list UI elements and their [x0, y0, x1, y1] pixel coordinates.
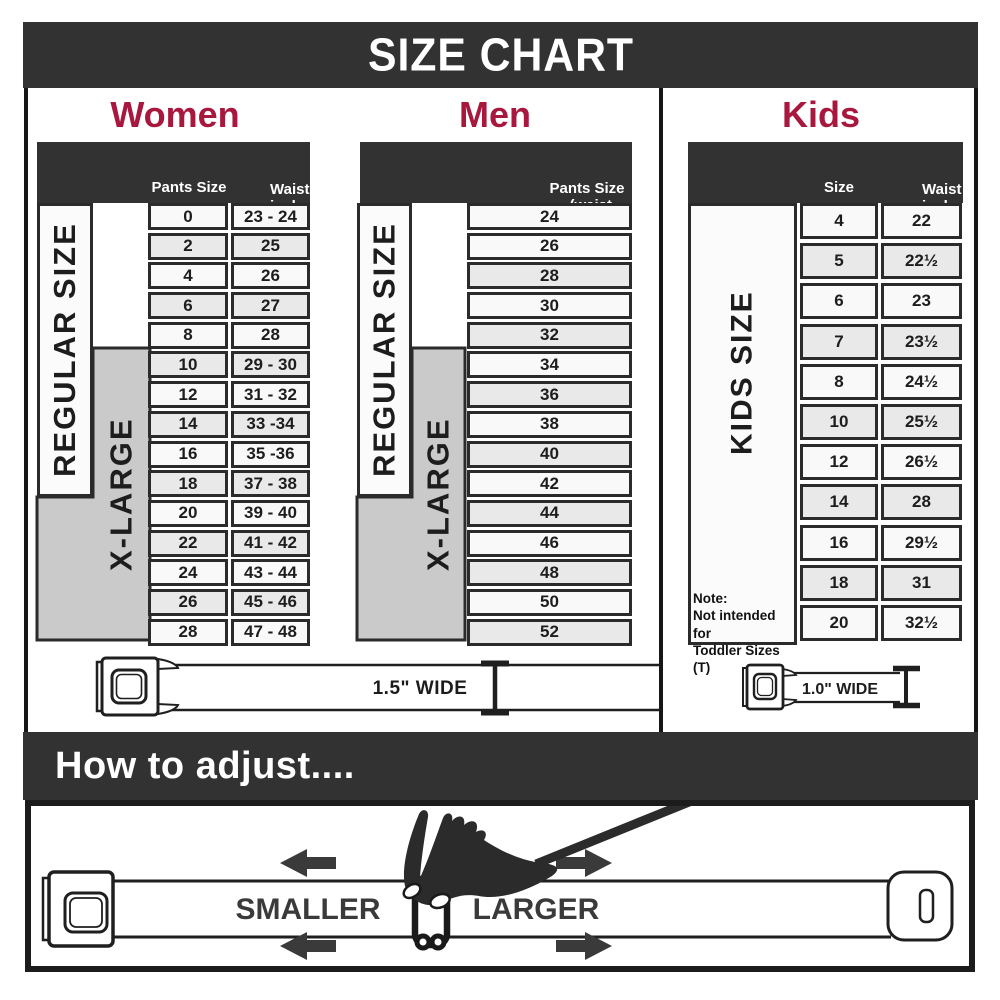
- seatbelt-buckle-icon: [97, 658, 178, 715]
- women-waist-cell: 27: [231, 292, 310, 319]
- men-size-cell: 46: [467, 530, 632, 557]
- men-size-cell: 42: [467, 470, 632, 497]
- size-chart-page: SIZE CHART Women Men Kids Pants Size Wai…: [0, 0, 1000, 1000]
- kids-waist-cell: 31: [881, 565, 962, 601]
- men-size-cell: 26: [467, 233, 632, 260]
- men-size-cell: 52: [467, 619, 632, 646]
- men-xlarge-label: X-LARGE: [412, 348, 465, 640]
- men-size-column: 242628303234363840424446485052: [467, 203, 632, 648]
- men-size-cell: 38: [467, 411, 632, 438]
- women-size-cell: 18: [148, 470, 228, 497]
- women-waist-cell: 39 - 40: [231, 500, 310, 527]
- men-regular-label: REGULAR SIZE: [357, 203, 412, 497]
- women-waist-column: 23 - 242526272829 - 3031 - 3233 -3435 -3…: [231, 203, 310, 648]
- kids-size-cell: 6: [800, 283, 878, 319]
- kids-waist-cell: 25½: [881, 404, 962, 440]
- adult-belt-illustration: 1.5" WIDE: [60, 648, 660, 732]
- page-title: SIZE CHART: [368, 28, 634, 81]
- kids-size-cell: 20: [800, 605, 878, 641]
- kids-size-cell: 4: [800, 203, 878, 239]
- larger-label: LARGER: [473, 893, 600, 926]
- women-size-cell: 20: [148, 500, 228, 527]
- kids-size-cell: 12: [800, 444, 878, 480]
- women-size-cell: 8: [148, 322, 228, 349]
- kids-belt-width-label: 1.0" WIDE: [802, 681, 878, 698]
- kids-size-cell: 10: [800, 404, 878, 440]
- kids-col1-header: Size: [804, 179, 874, 196]
- women-size-column: 0246810121416182022242628: [148, 203, 228, 648]
- women-size-cell: 26: [148, 589, 228, 616]
- kids-waist-cell: 32½: [881, 605, 962, 641]
- women-size-cell: 4: [148, 262, 228, 289]
- women-waist-cell: 26: [231, 262, 310, 289]
- men-size-cell: 40: [467, 441, 632, 468]
- women-waist-cell: 37 - 38: [231, 470, 310, 497]
- kids-waist-cell: 28: [881, 484, 962, 520]
- adjustment-illustration: SMALLER LARGER: [31, 806, 969, 966]
- kids-size-cell: 14: [800, 484, 878, 520]
- women-waist-cell: 25: [231, 233, 310, 260]
- how-to-adjust-band: How to adjust....: [23, 732, 978, 800]
- men-size-cell: 30: [467, 292, 632, 319]
- kids-size-cell: 16: [800, 525, 878, 561]
- kids-waist-cell: 23½: [881, 324, 962, 360]
- women-waist-cell: 41 - 42: [231, 530, 310, 557]
- women-waist-cell: 43 - 44: [231, 559, 310, 586]
- men-size-cell: 50: [467, 589, 632, 616]
- kids-size-column: 45678101214161820: [800, 203, 878, 645]
- belt-tip-icon: [888, 872, 952, 940]
- women-size-cell: 28: [148, 619, 228, 646]
- men-col-header: Pants Size(waist inches): [467, 180, 632, 197]
- kids-size-cell: 5: [800, 243, 878, 279]
- men-size-cell: 32: [467, 322, 632, 349]
- men-size-cell: 28: [467, 262, 632, 289]
- men-table-header: Pants Size(waist inches): [360, 142, 632, 203]
- kids-waist-cell: 29½: [881, 525, 962, 561]
- women-size-cell: 24: [148, 559, 228, 586]
- men-size-cell: 36: [467, 381, 632, 408]
- women-waist-cell: 33 -34: [231, 411, 310, 438]
- kids-waist-cell: 24½: [881, 364, 962, 400]
- women-waist-cell: 31 - 32: [231, 381, 310, 408]
- kids-size-cell: 18: [800, 565, 878, 601]
- kids-waist-column: 2222½2323½24½25½26½2829½3132½: [881, 203, 962, 645]
- arrow-left-icon: [280, 849, 336, 877]
- women-size-cell: 22: [148, 530, 228, 557]
- women-regular-label: REGULAR SIZE: [37, 203, 93, 497]
- kids-belt-illustration: 1.0" WIDE: [730, 655, 940, 715]
- men-size-cell: 24: [467, 203, 632, 230]
- seatbelt-buckle-icon: [743, 665, 796, 709]
- women-size-cell: 6: [148, 292, 228, 319]
- women-size-cell: 2: [148, 233, 228, 260]
- kids-col2-header: Waistinches: [884, 181, 960, 198]
- women-waist-cell: 23 - 24: [231, 203, 310, 230]
- kids-waist-cell: 23: [881, 283, 962, 319]
- kids-size-label: KIDS SIZE: [688, 203, 797, 543]
- women-waist-cell: 28: [231, 322, 310, 349]
- kids-size-cell: 7: [800, 324, 878, 360]
- title-bar: SIZE CHART: [23, 22, 978, 88]
- women-waist-cell: 47 - 48: [231, 619, 310, 646]
- women-waist-cell: 45 - 46: [231, 589, 310, 616]
- adjustment-illustration-box: SMALLER LARGER: [25, 800, 975, 972]
- kids-size-cell: 8: [800, 364, 878, 400]
- women-size-cell: 0: [148, 203, 228, 230]
- men-size-cell: 44: [467, 500, 632, 527]
- women-waist-cell: 29 - 30: [231, 351, 310, 378]
- pulled-strap-line: [536, 806, 699, 864]
- width-measure-icon: [481, 664, 509, 713]
- seatbelt-buckle-icon: [43, 872, 113, 946]
- women-size-cell: 14: [148, 411, 228, 438]
- women-size-cell: 12: [148, 381, 228, 408]
- women-size-cell: 16: [148, 441, 228, 468]
- how-to-adjust-title: How to adjust....: [55, 745, 355, 788]
- women-size-cell: 10: [148, 351, 228, 378]
- women-waist-cell: 35 -36: [231, 441, 310, 468]
- adult-belt-width-label: 1.5" WIDE: [373, 678, 468, 699]
- kids-waist-cell: 22: [881, 203, 962, 239]
- kids-table-header: Size Waistinches: [688, 142, 963, 203]
- kids-waist-cell: 22½: [881, 243, 962, 279]
- women-xlarge-label: X-LARGE: [93, 348, 150, 640]
- kids-waist-cell: 26½: [881, 444, 962, 480]
- men-size-cell: 34: [467, 351, 632, 378]
- men-size-cell: 48: [467, 559, 632, 586]
- smaller-label: SMALLER: [236, 893, 381, 926]
